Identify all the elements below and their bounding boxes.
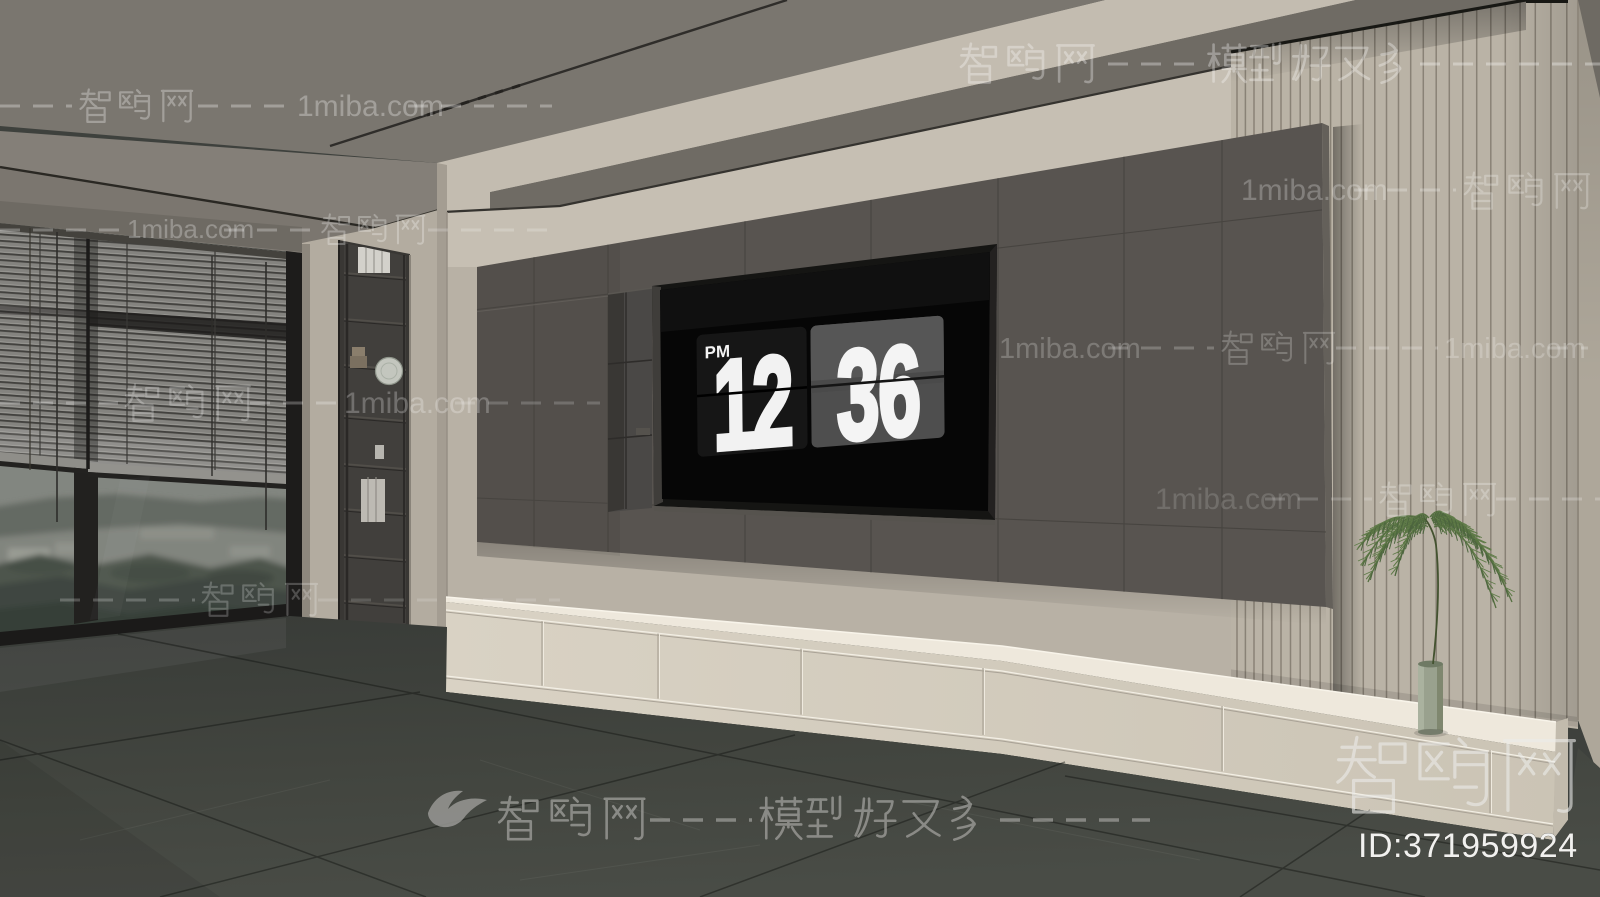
svg-text:12: 12 (713, 330, 792, 478)
svg-text:ID:371959924: ID:371959924 (1358, 827, 1578, 865)
svg-text:36: 36 (836, 320, 920, 468)
